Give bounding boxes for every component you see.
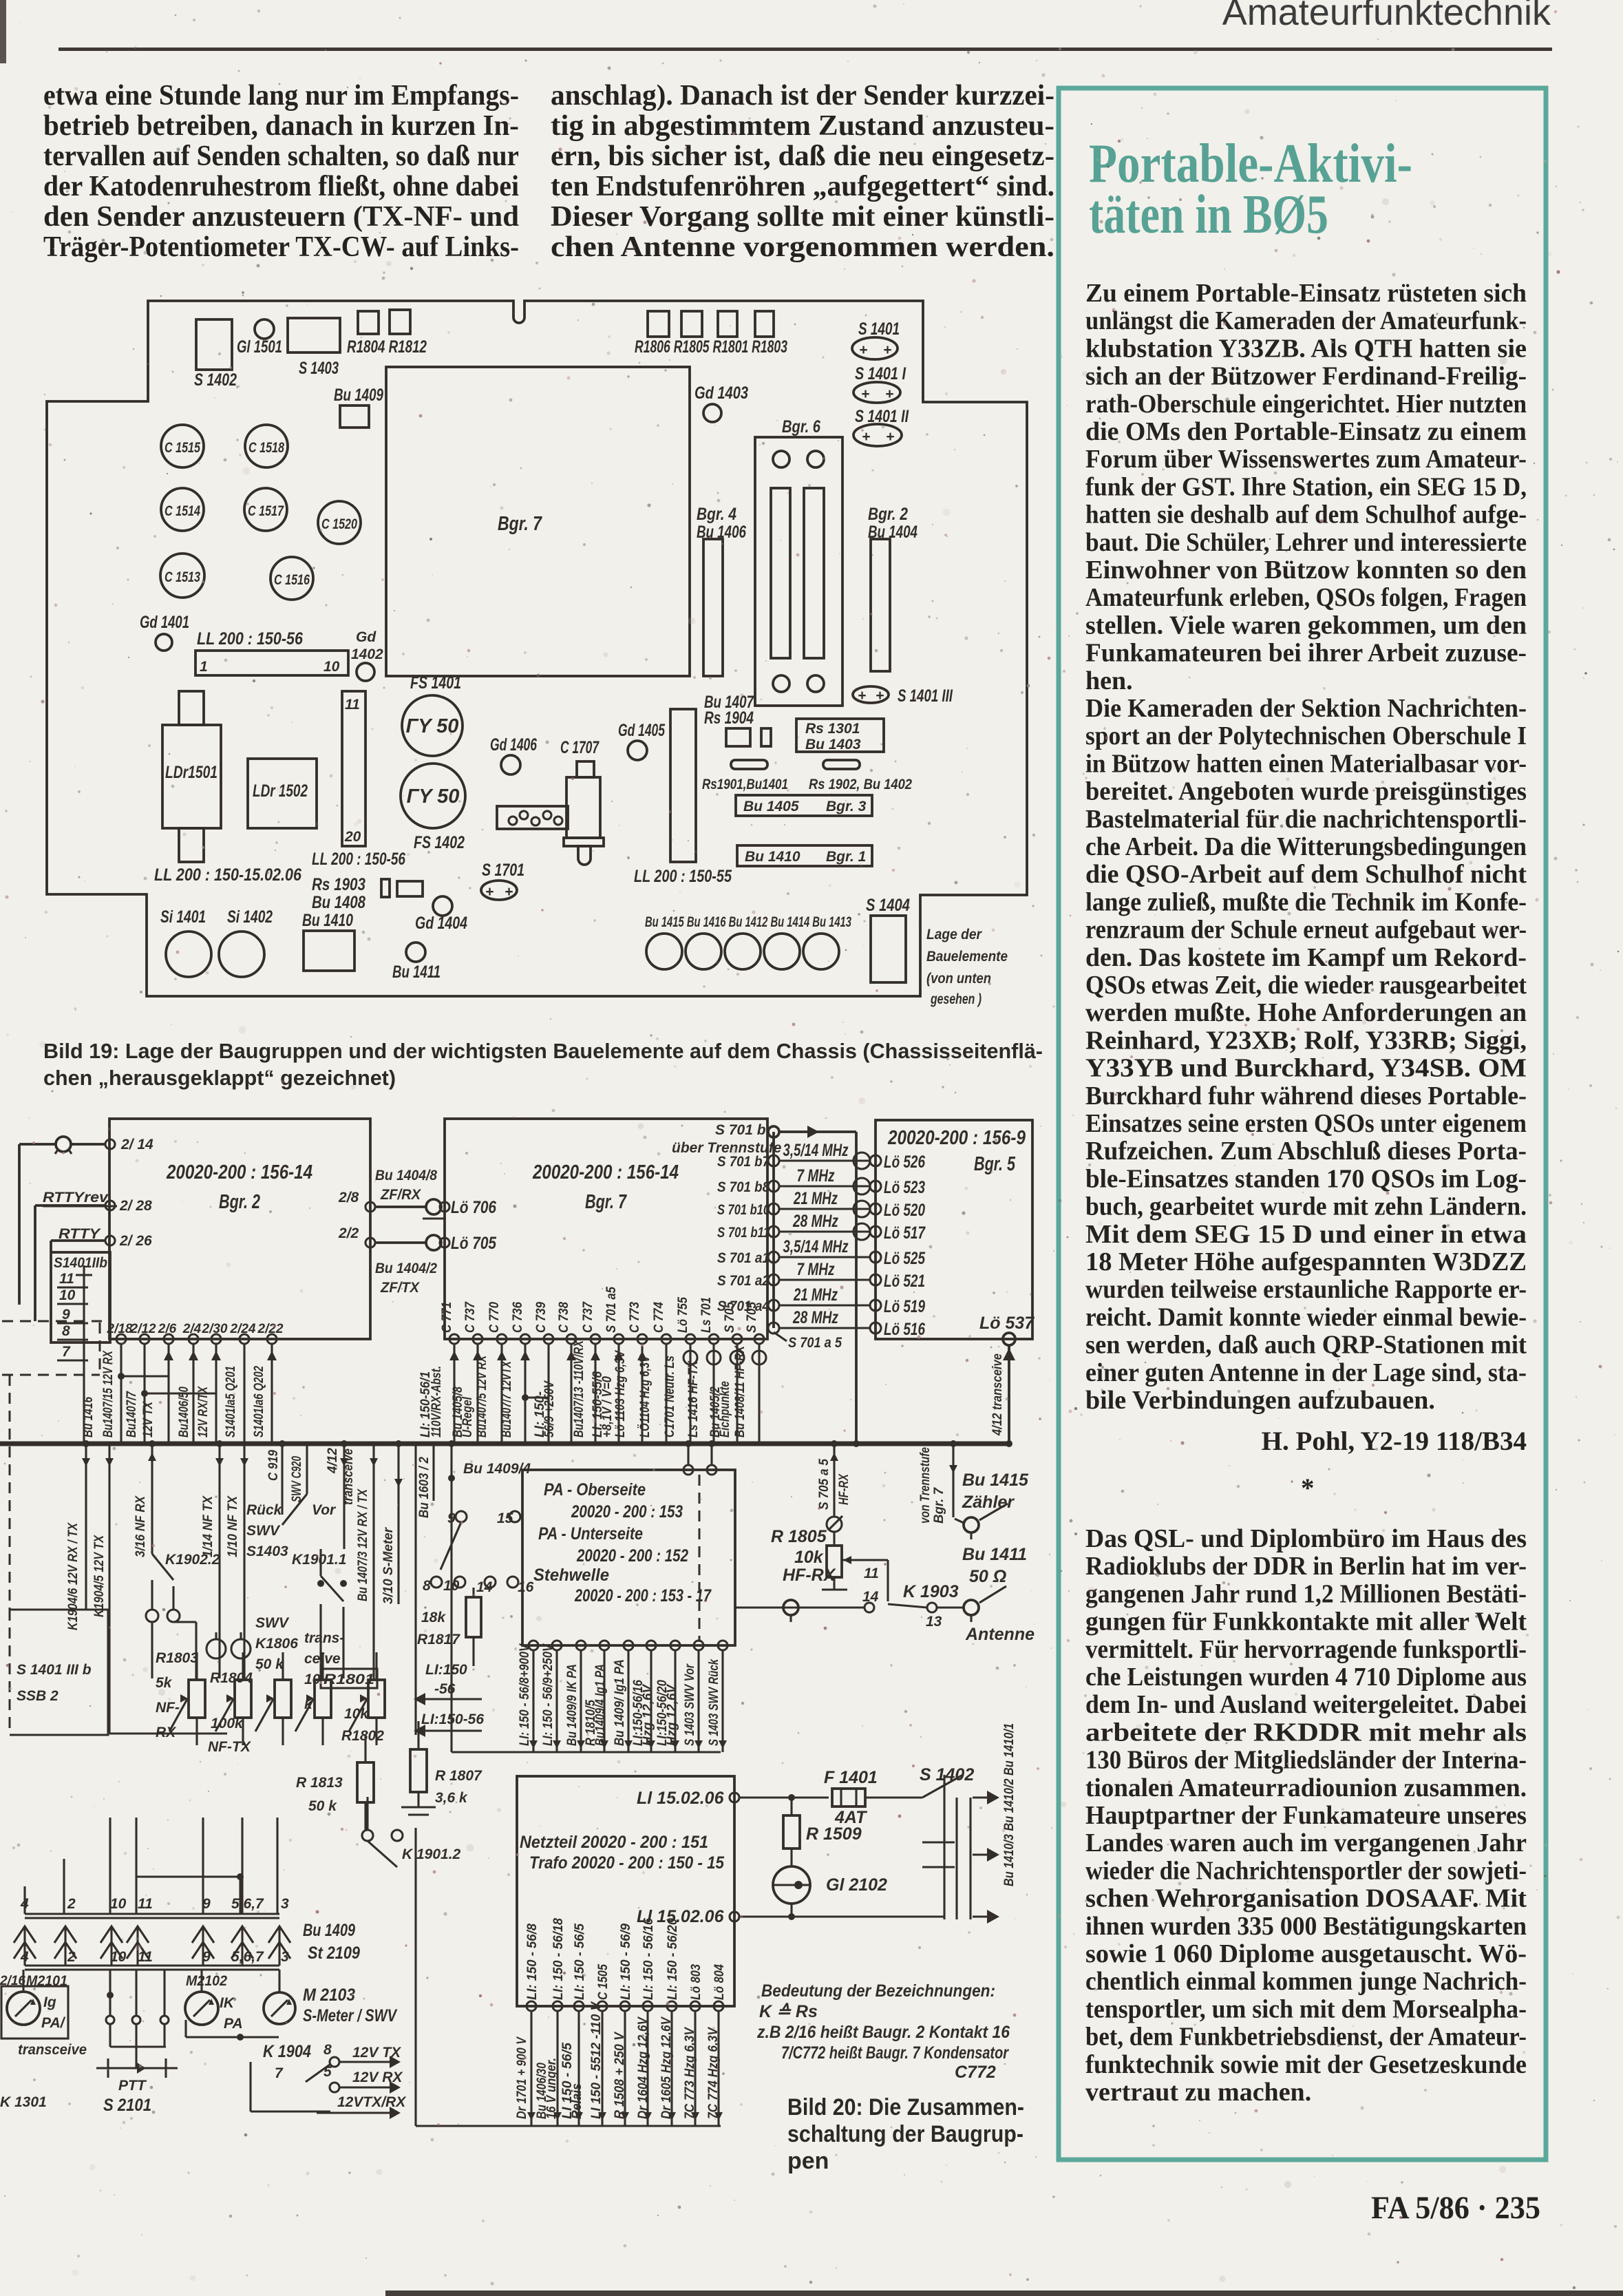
svg-text:12V TX: 12V TX	[352, 2045, 402, 2061]
svg-text:Einwohner von Bützow konnten s: Einwohner von Bützow konnten so den	[1085, 556, 1527, 584]
svg-text:2/6: 2/6	[158, 1322, 177, 1336]
svg-text:transceive: transceive	[341, 1449, 356, 1505]
svg-text:Burckhard fuhr während dieses: Burckhard fuhr während dieses Portable-	[1085, 1082, 1527, 1110]
svg-text:C 770: C 770	[487, 1302, 502, 1333]
svg-text:k: k	[304, 1696, 313, 1712]
svg-text:Bu 1408/11 HF-RX: Bu 1408/11 HF-RX	[733, 1345, 747, 1437]
svg-text:Bu 1408: Bu 1408	[312, 893, 365, 912]
svg-text:Die Kameraden der Sektion Nach: Die Kameraden der Sektion Nachrichten-	[1085, 694, 1527, 723]
svg-text:S 701 a2: S 701 a2	[717, 1273, 770, 1289]
svg-text:7C 774 Hzg 6,3V: 7C 774 Hzg 6,3V	[706, 2027, 721, 2119]
svg-text:der Katodenruhestrom fließt, o: der Katodenruhestrom fließt, ohne dabei	[43, 171, 519, 202]
svg-text:LI: 150 - 56/20: LI: 150 - 56/20	[666, 1918, 680, 2000]
svg-text:Lö 706: Lö 706	[451, 1198, 497, 1217]
svg-text:Hzg 12,6V: Hzg 12,6V	[665, 1684, 679, 1746]
svg-text:110V/RX-Abst.: 110V/RX-Abst.	[429, 1366, 444, 1437]
svg-text:St 2109: St 2109	[308, 1944, 360, 1963]
svg-text:K 1301: K 1301	[0, 2094, 47, 2110]
svg-text:50 Ω: 50 Ω	[969, 1567, 1006, 1586]
svg-text:Bu1407/13 -110V/RX: Bu1407/13 -110V/RX	[572, 1340, 586, 1437]
svg-text:C 1515: C 1515	[165, 440, 200, 456]
svg-text:2/12: 2/12	[130, 1322, 156, 1336]
svg-text:Gd 1401: Gd 1401	[140, 613, 189, 632]
svg-text:Gd 1405: Gd 1405	[618, 721, 666, 740]
svg-text:9: 9	[202, 1949, 211, 1965]
svg-text:FS 1401: FS 1401	[410, 673, 461, 693]
svg-text:20020-200 : 156-14: 20020-200 : 156-14	[166, 1161, 312, 1183]
svg-text:Lö 519: Lö 519	[884, 1297, 925, 1316]
svg-text:R1803: R1803	[156, 1650, 198, 1666]
svg-text:1: 1	[200, 659, 208, 675]
svg-text:3,5/14 MHz: 3,5/14 MHz	[783, 1237, 849, 1256]
svg-text:PA/: PA/	[41, 2015, 66, 2031]
svg-text:Ls 1416 HF-TX: Ls 1416 HF-TX	[686, 1360, 701, 1437]
svg-text:Eichpunkte: Eichpunkte	[718, 1381, 732, 1437]
svg-text:SWV: SWV	[246, 1523, 281, 1539]
svg-text:R1804: R1804	[210, 1670, 253, 1686]
svg-text:7: 7	[62, 1344, 71, 1360]
svg-text:LL 200 : 150-15.02.06: LL 200 : 150-15.02.06	[154, 865, 302, 885]
svg-text:R 1509: R 1509	[806, 1824, 862, 1844]
svg-text:HF-RX: HF-RX	[783, 1566, 836, 1585]
svg-text:10: 10	[323, 659, 340, 675]
svg-text:+: +	[859, 342, 867, 358]
svg-text:Netzteil 20020 - 200 : 151: Netzteil 20020 - 200 : 151	[520, 1833, 708, 1852]
svg-text:IK: IK	[220, 1995, 235, 2011]
svg-text:S 1404: S 1404	[866, 896, 910, 915]
svg-text:C 736: C 736	[511, 1302, 525, 1333]
svg-text:C 1514: C 1514	[165, 503, 200, 519]
svg-text:S 2101: S 2101	[103, 2096, 151, 2115]
svg-text:S 1701: S 1701	[482, 861, 524, 880]
svg-text:21 MHz: 21 MHz	[793, 1189, 838, 1208]
svg-text:12V TX: 12V TX	[141, 1401, 156, 1437]
svg-text:S 1403 SWV Rück: S 1403 SWV Rück	[707, 1658, 721, 1746]
svg-text:2/4: 2/4	[182, 1322, 202, 1336]
svg-text:2/ 26: 2/ 26	[119, 1233, 152, 1249]
svg-text:gesehen ): gesehen )	[930, 991, 982, 1007]
svg-text:20020 - 200 : 153 - 17: 20020 - 200 : 153 - 17	[574, 1586, 712, 1605]
svg-text:renzraum der Schule erneut auf: renzraum der Schule erneut aufgebaut wer…	[1085, 916, 1527, 945]
svg-text:Amateurfunktechnik: Amateurfunktechnik	[1222, 0, 1551, 33]
svg-text:SWV: SWV	[255, 1615, 290, 1631]
svg-text:Si 1401: Si 1401	[160, 907, 206, 927]
svg-text:Mit dem SEG 15 D und einer in: Mit dem SEG 15 D und einer in etwa	[1085, 1220, 1527, 1249]
svg-text:S 705: S 705	[723, 1302, 737, 1333]
svg-text:S 701 b7: S 701 b7	[717, 1154, 770, 1170]
svg-text:+: +	[485, 884, 494, 900]
svg-text:5,6,7: 5,6,7	[231, 1949, 264, 1965]
svg-text:Landes waren auch im vergangen: Landes waren auch im vergangenen Jahr	[1085, 1829, 1527, 1857]
svg-text:Lö 517: Lö 517	[884, 1223, 926, 1243]
svg-text:Funkamateuren bei ihrer Arbeit: Funkamateuren bei ihrer Arbeit zuzuse-	[1085, 639, 1527, 668]
svg-text:LI: 150 - 56/5: LI: 150 - 56/5	[573, 1924, 587, 2000]
svg-text:Bu1407/7 12VTX: Bu1407/7 12VTX	[500, 1360, 514, 1437]
svg-text:tensportler, um sich mit dem M: tensportler, um sich mit dem Morsealpha-	[1085, 1994, 1527, 2023]
svg-text:Dieser Vorgang sollte mit eine: Dieser Vorgang sollte mit einer künstli-	[551, 201, 1054, 233]
svg-text:funk der GST. Ihre Station, ei: funk der GST. Ihre Station, ein SEG 15 D…	[1085, 472, 1527, 501]
svg-text:S 1401 I: S 1401 I	[855, 364, 906, 383]
svg-text:Zähler: Zähler	[962, 1493, 1015, 1512]
svg-text:C 1513: C 1513	[165, 569, 200, 585]
svg-text:in Bützow hatten einen Materia: in Bützow hatten einen Materialbasar vor…	[1085, 749, 1527, 778]
svg-text:Bu 1403: Bu 1403	[805, 737, 861, 752]
svg-text:C 1505: C 1505	[596, 1964, 611, 2000]
svg-text:S 705: S 705	[745, 1302, 759, 1333]
svg-text:C 739: C 739	[534, 1302, 549, 1333]
svg-text:S-Meter / SWV: S-Meter / SWV	[303, 2006, 398, 2025]
svg-text:Gd 1404: Gd 1404	[415, 914, 467, 933]
svg-text:Bild 20: Die Zusammen-: Bild 20: Die Zusammen-	[787, 2094, 1024, 2120]
svg-text:PA - Oberseite: PA - Oberseite	[544, 1480, 646, 1499]
svg-text:7 MHz: 7 MHz	[797, 1166, 835, 1186]
svg-text:Bedeutung der Bezeichnungen:: Bedeutung der Bezeichnungen:	[761, 1981, 995, 2001]
svg-text:Bgr. 1: Bgr. 1	[826, 849, 866, 865]
svg-text:wieder die Nachrichtensportler: wieder die Nachrichtensportler der sowje…	[1085, 1856, 1527, 1885]
svg-text:F 1401: F 1401	[824, 1768, 878, 1787]
svg-text:R 1807: R 1807	[435, 1768, 482, 1784]
svg-text:K1904/6 12V RX / TX: K1904/6 12V RX / TX	[66, 1522, 81, 1630]
svg-text:C 1707: C 1707	[560, 738, 600, 757]
svg-text:die OMs den Portable-Einsatz z: die OMs den Portable-Einsatz zu einem	[1085, 417, 1527, 446]
svg-text:Bu 1409/9 IK PA: Bu 1409/9 IK PA	[565, 1664, 580, 1746]
svg-text:2/24: 2/24	[230, 1322, 256, 1336]
svg-text:56/9 +250V: 56/9 +250V	[542, 1380, 557, 1437]
svg-text:R1801: R1801	[323, 1672, 374, 1687]
svg-text:Bu1409/4 Ig1 PA: Bu1409/4 Ig1 PA	[593, 1664, 608, 1746]
svg-text:Lö 1103 Hzg 6,3V: Lö 1103 Hzg 6,3V	[613, 1350, 628, 1437]
svg-text:ble-Einsatzes standen 170 QSOs: ble-Einsatzes standen 170 QSOs im Log-	[1085, 1164, 1527, 1193]
svg-text:Bu 1407/3 12V RX / TX: Bu 1407/3 12V RX / TX	[356, 1488, 370, 1601]
svg-text:Bu 1404/8: Bu 1404/8	[375, 1168, 437, 1183]
svg-text:Ig: Ig	[43, 1994, 56, 2010]
svg-text:+: +	[885, 386, 893, 402]
svg-text:2/22: 2/22	[257, 1322, 284, 1336]
svg-text:*: *	[1301, 1473, 1315, 1503]
svg-text:Bu 1405: Bu 1405	[743, 799, 799, 814]
svg-text:FA 5/86 · 235: FA 5/86 · 235	[1371, 2190, 1540, 2226]
svg-text:4: 4	[20, 1949, 29, 1965]
svg-text:4/12 transceive: 4/12 transceive	[990, 1354, 1005, 1436]
svg-text:21 MHz: 21 MHz	[793, 1285, 838, 1305]
svg-text:C 1517: C 1517	[248, 503, 284, 519]
svg-text:ceive: ceive	[304, 1651, 341, 1667]
svg-text:+: +	[876, 688, 884, 704]
svg-text:sowie 1 060 Diplome ausgetausc: sowie 1 060 Diplome ausgetauscht. Wö-	[1085, 1939, 1527, 1968]
svg-text:10: 10	[304, 1672, 321, 1687]
svg-text:Einsatzes seine ersten QSOs un: Einsatzes seine ersten QSOs unter eigene…	[1085, 1109, 1527, 1138]
svg-text:9: 9	[202, 1896, 211, 1912]
svg-text:Bastelmaterial für die nachric: Bastelmaterial für die nachrichtensportl…	[1085, 805, 1527, 834]
svg-text:C 919: C 919	[266, 1450, 281, 1481]
svg-text:vertraut zu machen.: vertraut zu machen.	[1085, 2078, 1311, 2107]
svg-text:Rs 1301: Rs 1301	[805, 721, 860, 737]
svg-text:S 1401 III b: S 1401 III b	[17, 1662, 92, 1678]
svg-text:Si 1402: Si 1402	[227, 907, 273, 927]
svg-text:von Trennstufe: von Trennstufe	[918, 1447, 933, 1524]
svg-text:28 MHz: 28 MHz	[792, 1212, 838, 1231]
svg-text:S 701 b: S 701 b	[715, 1122, 766, 1138]
svg-text:130 Büros der Mitgliedsländer: 130 Büros der Mitgliedsländer der Intern…	[1085, 1746, 1527, 1775]
svg-text:R1802: R1802	[341, 1728, 384, 1744]
svg-text:Gd 1406: Gd 1406	[490, 735, 538, 755]
svg-text:Bgr. 6: Bgr. 6	[782, 417, 821, 436]
svg-text:tionalen Amateurradiounion zus: tionalen Amateurradiounion zusammen.	[1085, 1773, 1527, 1802]
svg-text:K1806: K1806	[255, 1636, 298, 1652]
svg-text:Bu 1409/4: Bu 1409/4	[463, 1461, 531, 1477]
svg-text:H. Pohl, Y2-19 118/B34: H. Pohl, Y2-19 118/B34	[1262, 1426, 1527, 1456]
svg-text:3,6 k: 3,6 k	[435, 1790, 468, 1806]
svg-text:S 705 a 5: S 705 a 5	[817, 1459, 831, 1510]
svg-text:chen Antenne vorgenommen werde: chen Antenne vorgenommen werden.	[551, 231, 1054, 263]
svg-text:schaltung der Baugrup-: schaltung der Baugrup-	[787, 2121, 1023, 2147]
svg-text:5k: 5k	[156, 1675, 173, 1691]
svg-text:2/ 14: 2/ 14	[120, 1137, 153, 1152]
svg-text:2/ 28: 2/ 28	[119, 1198, 152, 1214]
svg-text:1/10 NF TX: 1/10 NF TX	[226, 1495, 240, 1557]
svg-text:lange zuließ, mußte die Techni: lange zuließ, mußte die Technik im Konfe…	[1085, 887, 1527, 916]
svg-text:Forum über Wissenswertes zum A: Forum über Wissenswertes zum Amateur-	[1085, 445, 1527, 474]
svg-text:Gd: Gd	[356, 629, 376, 645]
svg-text:Dr 1701 + 900 V: Dr 1701 + 900 V	[515, 2036, 529, 2119]
svg-text:16 V unger.: 16 V unger.	[544, 2058, 559, 2119]
svg-text:+: +	[505, 884, 513, 900]
svg-text:Vor: Vor	[312, 1502, 337, 1518]
svg-text:S 1403: S 1403	[299, 359, 339, 378]
svg-text:+: +	[861, 386, 869, 402]
svg-text:etwa eine Stunde lang nur im E: etwa eine Stunde lang nur im Empfangs-	[43, 80, 519, 112]
svg-text:ten Endstufenröhren „aufgegett: ten Endstufenröhren „aufgegettert“ sind.	[551, 171, 1054, 202]
svg-text:werden mußte. Hohe Anforderung: werden mußte. Hohe Anforderungen an	[1085, 998, 1527, 1027]
svg-text:2/2: 2/2	[338, 1225, 359, 1241]
svg-text:Radioklubs der DDR in Berlin h: Radioklubs der DDR in Berlin hat im ver-	[1085, 1552, 1527, 1581]
svg-text:Bu1407/7: Bu1407/7	[125, 1391, 139, 1437]
svg-text:rath-Oberschule eingerichtet.: rath-Oberschule eingerichtet. Hier nutzt…	[1085, 390, 1527, 419]
svg-text:8: 8	[62, 1323, 70, 1339]
svg-text:pen: pen	[787, 2148, 829, 2174]
svg-text:schen Wehrorganisation DOSAAF.: schen Wehrorganisation DOSAAF. Mit	[1085, 1884, 1527, 1913]
svg-text:anschlag). Danach ist der Send: anschlag). Danach ist der Sender kurzzei…	[551, 80, 1054, 112]
svg-text:LÖ1104 Hzg 6,3V: LÖ1104 Hzg 6,3V	[638, 1355, 653, 1437]
svg-text:HF-RX: HF-RX	[837, 1473, 851, 1505]
svg-text:S 701 a1: S 701 a1	[717, 1250, 770, 1266]
svg-text:C 774: C 774	[652, 1302, 666, 1333]
svg-text:Bgr. 7: Bgr. 7	[932, 1487, 946, 1524]
svg-text:Lö 520: Lö 520	[884, 1201, 925, 1220]
svg-text:Gl 1501: Gl 1501	[237, 337, 282, 357]
svg-text:Lö 755: Lö 755	[676, 1297, 690, 1333]
svg-text:LI: 150 - 56/9+250V: LI: 150 - 56/9+250V	[541, 1643, 555, 1746]
svg-text:Rs 1902, Bu 1402: Rs 1902, Bu 1402	[809, 777, 912, 792]
svg-text:8: 8	[423, 1578, 431, 1594]
svg-text:ΓY 50: ΓY 50	[407, 786, 460, 808]
svg-text:Bu1406/50: Bu1406/50	[177, 1387, 191, 1437]
svg-text:Stehwelle: Stehwelle	[533, 1566, 609, 1585]
svg-text:Bu 1411: Bu 1411	[392, 962, 441, 982]
svg-text:che Arbeit. Da die Witterungsb: che Arbeit. Da die Witterungsbedingungen	[1085, 832, 1527, 861]
svg-text:Träger-Potentiometer TX-CW- au: Träger-Potentiometer TX-CW- auf Links-	[43, 231, 519, 263]
svg-text:LL 200 : 150-55: LL 200 : 150-55	[634, 867, 732, 886]
svg-text:Bauelemente: Bauelemente	[926, 949, 1008, 965]
svg-text:11: 11	[345, 697, 360, 713]
svg-text:S 701 a5: S 701 a5	[604, 1287, 619, 1333]
svg-text:R 1805: R 1805	[771, 1527, 827, 1546]
svg-text:2/18: 2/18	[107, 1322, 133, 1336]
svg-text:Bu 1409/ Ig1 PA: Bu 1409/ Ig1 PA	[613, 1659, 627, 1746]
svg-text:C 1516: C 1516	[274, 572, 310, 588]
svg-text:LI: 150 - 56/8+900V: LI: 150 - 56/8+900V	[518, 1643, 532, 1746]
svg-text:Lö 804: Lö 804	[712, 1964, 727, 2000]
svg-text:S1401IIb: S1401IIb	[54, 1255, 107, 1271]
svg-text:K ≙ Rs: K ≙ Rs	[759, 2002, 818, 2021]
svg-text:20020-200 : 156-14: 20020-200 : 156-14	[532, 1161, 679, 1183]
svg-text:den Sender anzusteuern (TX-NF-: den Sender anzusteuern (TX-NF- und	[43, 201, 519, 233]
svg-text:11: 11	[138, 1896, 153, 1912]
svg-text:10k: 10k	[794, 1548, 824, 1567]
svg-text:ern, bis sicher ist, daß die n: ern, bis sicher ist, daß die neu eingese…	[551, 140, 1054, 172]
svg-text:Rs1901,Bu1401: Rs1901,Bu1401	[702, 777, 788, 792]
svg-text:Zu einem Portable-Einsatz rüst: Zu einem Portable-Einsatz rüsteten sich	[1085, 279, 1527, 308]
svg-text:1/14 NF TX: 1/14 NF TX	[201, 1495, 215, 1557]
svg-text:Bu 1409: Bu 1409	[303, 1921, 355, 1940]
svg-text:3,5/14 MHz: 3,5/14 MHz	[783, 1141, 849, 1160]
svg-text:SWV C920: SWV C920	[290, 1456, 304, 1502]
svg-text:14: 14	[476, 1579, 493, 1595]
svg-text:M 2103: M 2103	[303, 1986, 355, 2005]
svg-text:funktechnik sowie mit der Gese: funktechnik sowie mit der Gesetzeskunde	[1085, 2050, 1527, 2079]
svg-text:tervallen auf Senden schalten,: tervallen auf Senden schalten, so daß nu…	[43, 140, 519, 172]
svg-text:Bu 1410: Bu 1410	[302, 911, 353, 930]
svg-text:4: 4	[20, 1896, 29, 1912]
svg-text:16: 16	[518, 1579, 534, 1595]
svg-text:20020 - 200 : 153: 20020 - 200 : 153	[571, 1502, 683, 1521]
svg-text:betrieb betreiben, danach in k: betrieb betreiben, danach in kurzen In-	[43, 110, 519, 142]
svg-text:Amateurfunk erleben, QSOs folg: Amateurfunk erleben, QSOs folgen, Fragen	[1085, 583, 1527, 612]
svg-text:11: 11	[864, 1566, 879, 1581]
svg-text:R1804 R1812: R1804 R1812	[347, 337, 427, 357]
svg-text:Dr 1605 Hzg 12,6V: Dr 1605 Hzg 12,6V	[659, 2016, 674, 2119]
svg-text:4/12: 4/12	[326, 1448, 340, 1474]
svg-text:K 1901.2: K 1901.2	[402, 1846, 461, 1862]
svg-text:S 701 b8: S 701 b8	[717, 1179, 770, 1195]
svg-text:bile Verbindungen aufzubauen.: bile Verbindungen aufzubauen.	[1085, 1386, 1435, 1415]
svg-text:einer guten Antenne in der Lag: einer guten Antenne in der Lage sind, st…	[1085, 1358, 1527, 1387]
svg-text:2: 2	[67, 1949, 76, 1965]
svg-text:Das QSL- und Diplombüro im Hau: Das QSL- und Diplombüro im Haus des	[1085, 1524, 1527, 1553]
svg-text:C 737: C 737	[581, 1301, 595, 1333]
svg-text:Bgr. 7: Bgr. 7	[585, 1191, 627, 1213]
svg-text:R 1508 + 250 V: R 1508 + 250 V	[613, 2032, 627, 2119]
svg-text:stellen. Viele waren gekommen,: stellen. Viele waren gekommen, um den	[1085, 611, 1527, 640]
svg-text:Bu1407/15 12V RX: Bu1407/15 12V RX	[101, 1350, 116, 1437]
svg-text:2/30: 2/30	[202, 1322, 228, 1336]
svg-text:LI: 150 - 56/16: LI: 150 - 56/16	[641, 1918, 656, 2000]
svg-text:2/8: 2/8	[338, 1190, 359, 1205]
svg-text:Bu 1409: Bu 1409	[334, 386, 383, 405]
svg-text:PA: PA	[224, 2016, 243, 2032]
svg-text:Lage der: Lage der	[926, 927, 983, 942]
svg-text:Bu 1404/2: Bu 1404/2	[375, 1261, 437, 1276]
svg-text:Bgr. 2: Bgr. 2	[219, 1191, 260, 1213]
svg-text:C 737: C 737	[463, 1301, 478, 1333]
svg-text:Bild 19: Lage der Baugruppen u: Bild 19: Lage der Baugruppen und der wic…	[43, 1039, 1043, 1063]
svg-text:12V RX: 12V RX	[352, 2069, 403, 2085]
svg-text:50 k: 50 k	[308, 1798, 337, 1814]
svg-text:C772: C772	[955, 2063, 996, 2082]
svg-text:5,6,7: 5,6,7	[231, 1896, 264, 1912]
svg-text:7: 7	[275, 2065, 284, 2081]
svg-text:S 1401 III: S 1401 III	[898, 686, 953, 706]
svg-text:7C 773 Hzg 6,3V: 7C 773 Hzg 6,3V	[683, 2027, 697, 2119]
svg-text:S 701 a 5: S 701 a 5	[788, 1335, 842, 1351]
svg-text:Dr 1604 Hzg 12,6V: Dr 1604 Hzg 12,6V	[636, 2016, 650, 2119]
svg-text:100k: 100k	[211, 1716, 244, 1731]
svg-text:K 1904: K 1904	[263, 2042, 311, 2061]
svg-text:bereitet. Angeboten wurde prei: bereitet. Angeboten wurde preisgünstiges	[1085, 777, 1527, 806]
svg-text:LI 150 - 5512 -110 V: LI 150 - 5512 -110 V	[589, 2001, 604, 2119]
svg-text:20: 20	[344, 829, 361, 845]
svg-text:Bu 1415: Bu 1415	[962, 1471, 1029, 1490]
svg-text:S 701 b11: S 701 b11	[717, 1225, 770, 1241]
svg-text:unlängst die Kameraden der Ama: unlängst die Kameraden der Amateurfunk-	[1085, 306, 1527, 335]
svg-text:C 1518: C 1518	[248, 440, 284, 456]
svg-text:RTTYrev.: RTTYrev.	[43, 1190, 112, 1205]
svg-text:Rs 1903: Rs 1903	[312, 875, 365, 894]
svg-text:Bgr. 7: Bgr. 7	[498, 513, 542, 535]
svg-text:C 1520: C 1520	[321, 516, 357, 532]
svg-text:SSB 2: SSB 2	[17, 1688, 59, 1704]
svg-text:LDr1501: LDr1501	[165, 763, 218, 782]
svg-text:chentlich einmal kommen junge: chentlich einmal kommen junge Nachrich-	[1085, 1967, 1527, 1996]
svg-text:Hzg 12,6V: Hzg 12,6V	[641, 1684, 655, 1746]
svg-text:reicht. Damit konnte wieder ei: reicht. Damit konnte wieder einmal bewie…	[1085, 1303, 1527, 1331]
svg-text:11: 11	[59, 1271, 74, 1287]
svg-text:Bgr. 4: Bgr. 4	[697, 505, 736, 524]
svg-text:S 1401: S 1401	[858, 319, 900, 339]
svg-text:S1401Ia5 Q201: S1401Ia5 Q201	[224, 1366, 238, 1437]
svg-text:+: +	[886, 429, 894, 445]
svg-text:+8,1V / V=0: +8,1V / V=0	[600, 1376, 615, 1437]
svg-text:Ll 15.02.06: Ll 15.02.06	[637, 1789, 725, 1808]
svg-text:10: 10	[110, 1949, 127, 1965]
svg-text:gangenen Jahr rund 1,2 Million: gangenen Jahr rund 1,2 Millionen Bestäti…	[1085, 1579, 1527, 1608]
svg-text:15: 15	[497, 1510, 513, 1526]
svg-text:R1806 R1805 R1801 R1803: R1806 R1805 R1801 R1803	[635, 337, 787, 357]
svg-text:2: 2	[67, 1896, 76, 1912]
svg-text:Bu1407/5 12V RX: Bu1407/5 12V RX	[475, 1355, 489, 1437]
svg-text:Antenne: Antenne	[965, 1625, 1035, 1644]
svg-text:11: 11	[138, 1949, 153, 1965]
svg-text:K 1903: K 1903	[903, 1582, 959, 1601]
svg-text:10: 10	[110, 1896, 127, 1912]
svg-text:transceive: transceive	[18, 2042, 87, 2058]
svg-text:Rück: Rück	[246, 1502, 283, 1518]
svg-text:ZF/RX: ZF/RX	[380, 1187, 422, 1203]
svg-text:LI: 150 - 56/18: LI: 150 - 56/18	[551, 1918, 566, 2000]
svg-text:8: 8	[323, 2042, 332, 2058]
svg-text:tig in abgestimmtem Zustand an: tig in abgestimmtem Zustand anzusteu-	[551, 110, 1054, 142]
svg-text:che Leistungen wurden 4 710 Di: che Leistungen wurden 4 710 Diplome aus	[1085, 1663, 1527, 1692]
svg-text:NF-TX: NF-TX	[208, 1739, 252, 1755]
svg-text:Lö 803: Lö 803	[689, 1964, 703, 2000]
svg-text:10k: 10k	[344, 1706, 369, 1722]
svg-text:Bu 1410: Bu 1410	[745, 849, 800, 865]
svg-text:baut. Die Schüler, Lehrer und: baut. Die Schüler, Lehrer und interessie…	[1085, 528, 1527, 557]
svg-text:ZF/TX: ZF/TX	[380, 1280, 421, 1296]
svg-text:10: 10	[59, 1287, 76, 1303]
svg-text:R1817: R1817	[417, 1632, 460, 1647]
svg-text:12VTX/RX: 12VTX/RX	[337, 2094, 407, 2110]
